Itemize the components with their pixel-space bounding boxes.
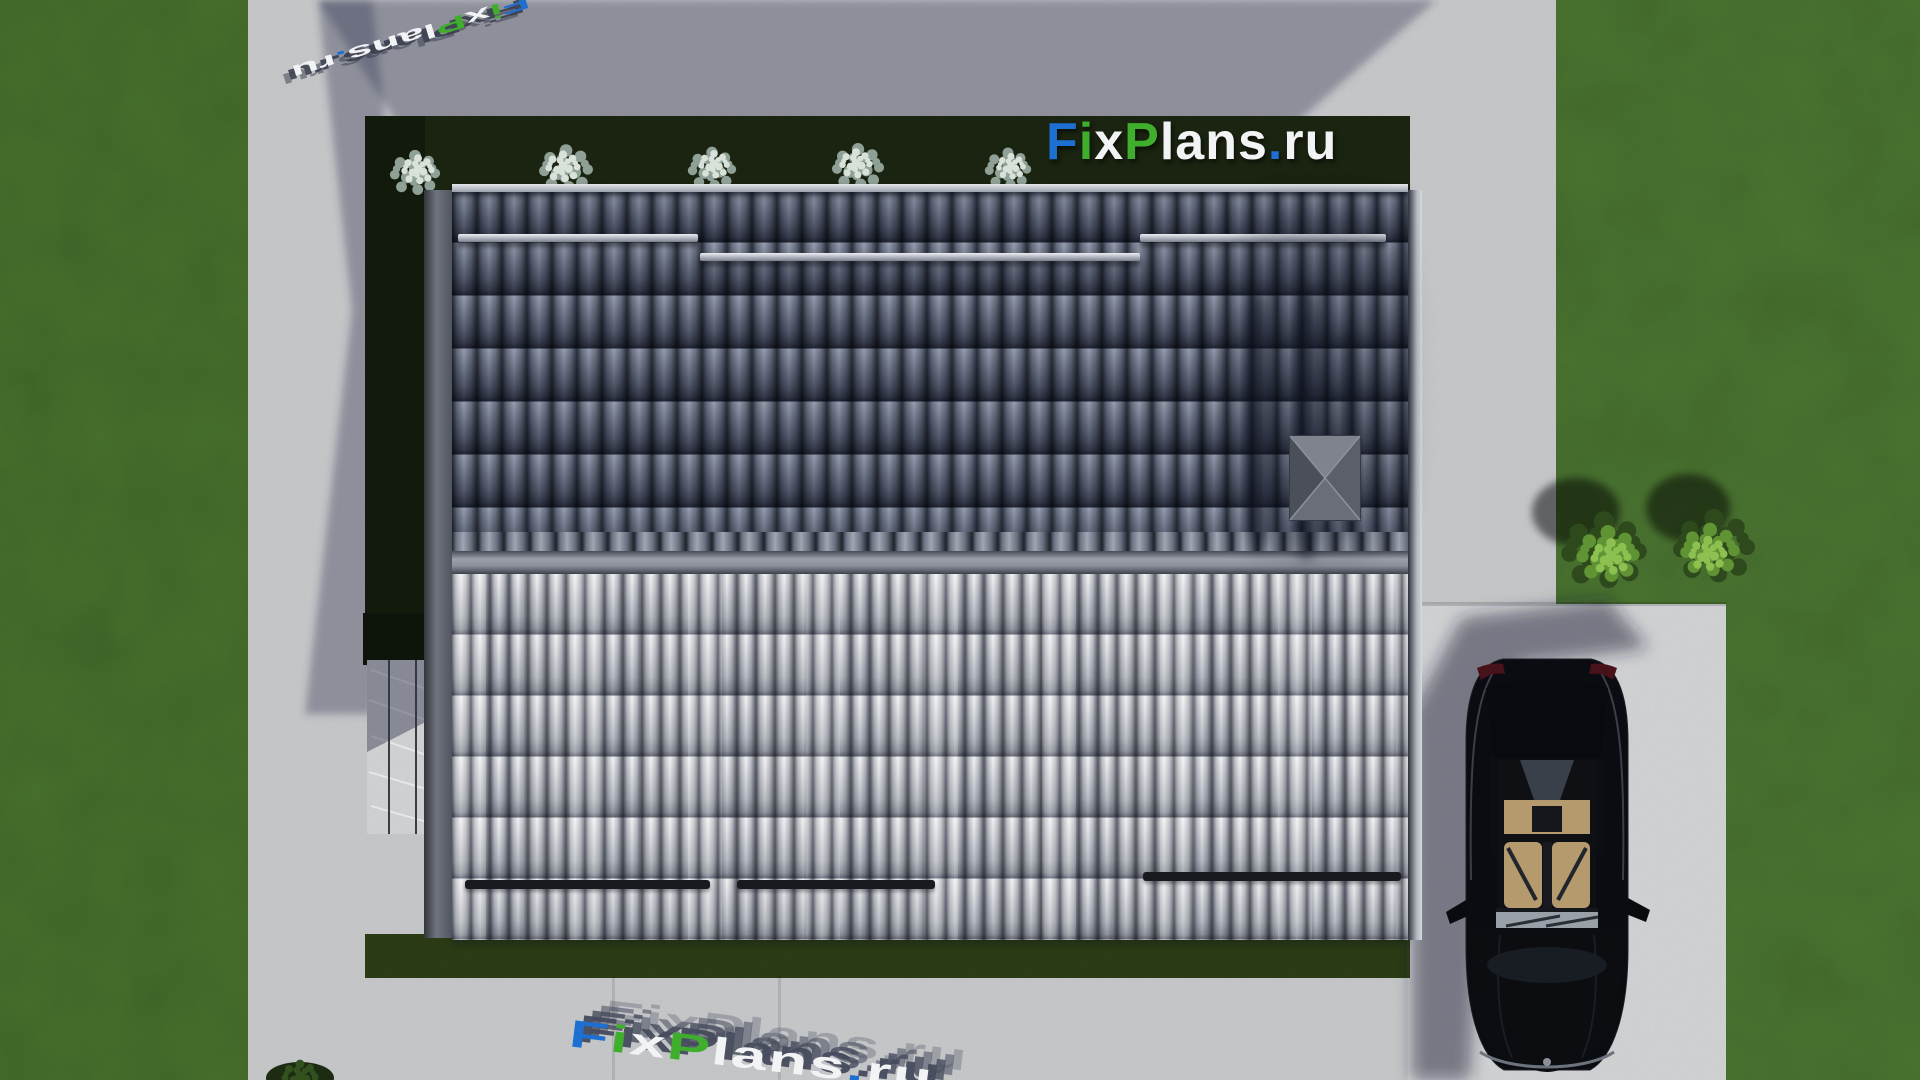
house-left-wall-edge bbox=[424, 190, 452, 938]
logo-letter: n bbox=[766, 1036, 812, 1080]
roof-rail-left bbox=[465, 880, 710, 889]
rear-window bbox=[1486, 679, 1608, 760]
logo-letter: n bbox=[1205, 113, 1238, 171]
roof-rail-middle bbox=[737, 880, 935, 889]
logo-letter: l bbox=[1160, 113, 1175, 171]
logo-letter: x bbox=[1094, 113, 1124, 171]
roof-ridge-band bbox=[452, 551, 1408, 574]
chimney bbox=[1288, 432, 1362, 524]
logo-letter: u bbox=[1305, 113, 1338, 171]
logo-letter: . bbox=[1268, 113, 1283, 171]
logo-letter: P bbox=[1124, 113, 1160, 171]
logo-letter: F bbox=[567, 1012, 613, 1060]
logo-letter: r bbox=[1283, 113, 1304, 171]
logo-letter: u bbox=[891, 1051, 937, 1080]
logo-letter: r bbox=[864, 1048, 896, 1080]
head-unit bbox=[1532, 806, 1562, 832]
car bbox=[1412, 600, 1650, 1080]
logo-letter: a bbox=[1175, 113, 1205, 171]
logo-letter: i bbox=[1079, 113, 1094, 171]
logo-letter: a bbox=[729, 1031, 772, 1078]
hood-emblem bbox=[1543, 1058, 1551, 1066]
aerial-house-render: FixPlans.ru FixPlans.ru FixPlans.ru bbox=[0, 0, 1920, 1080]
logo-letter: x bbox=[627, 1019, 670, 1066]
snow-guard-middle bbox=[700, 253, 1140, 261]
roof-rail-right bbox=[1143, 872, 1401, 881]
roof-top-gutter bbox=[452, 184, 1408, 192]
logo-letter: F bbox=[1046, 113, 1079, 171]
house-right-eave bbox=[1408, 190, 1422, 940]
snow-guard-left bbox=[458, 234, 698, 242]
logo-letter: s bbox=[807, 1041, 850, 1080]
roof-shadow-streak bbox=[1246, 292, 1270, 550]
brand-logo-fixplans: FixPlans.ru bbox=[1046, 116, 1337, 168]
logo-letter: P bbox=[665, 1024, 715, 1072]
logo-letter: s bbox=[1238, 113, 1268, 171]
